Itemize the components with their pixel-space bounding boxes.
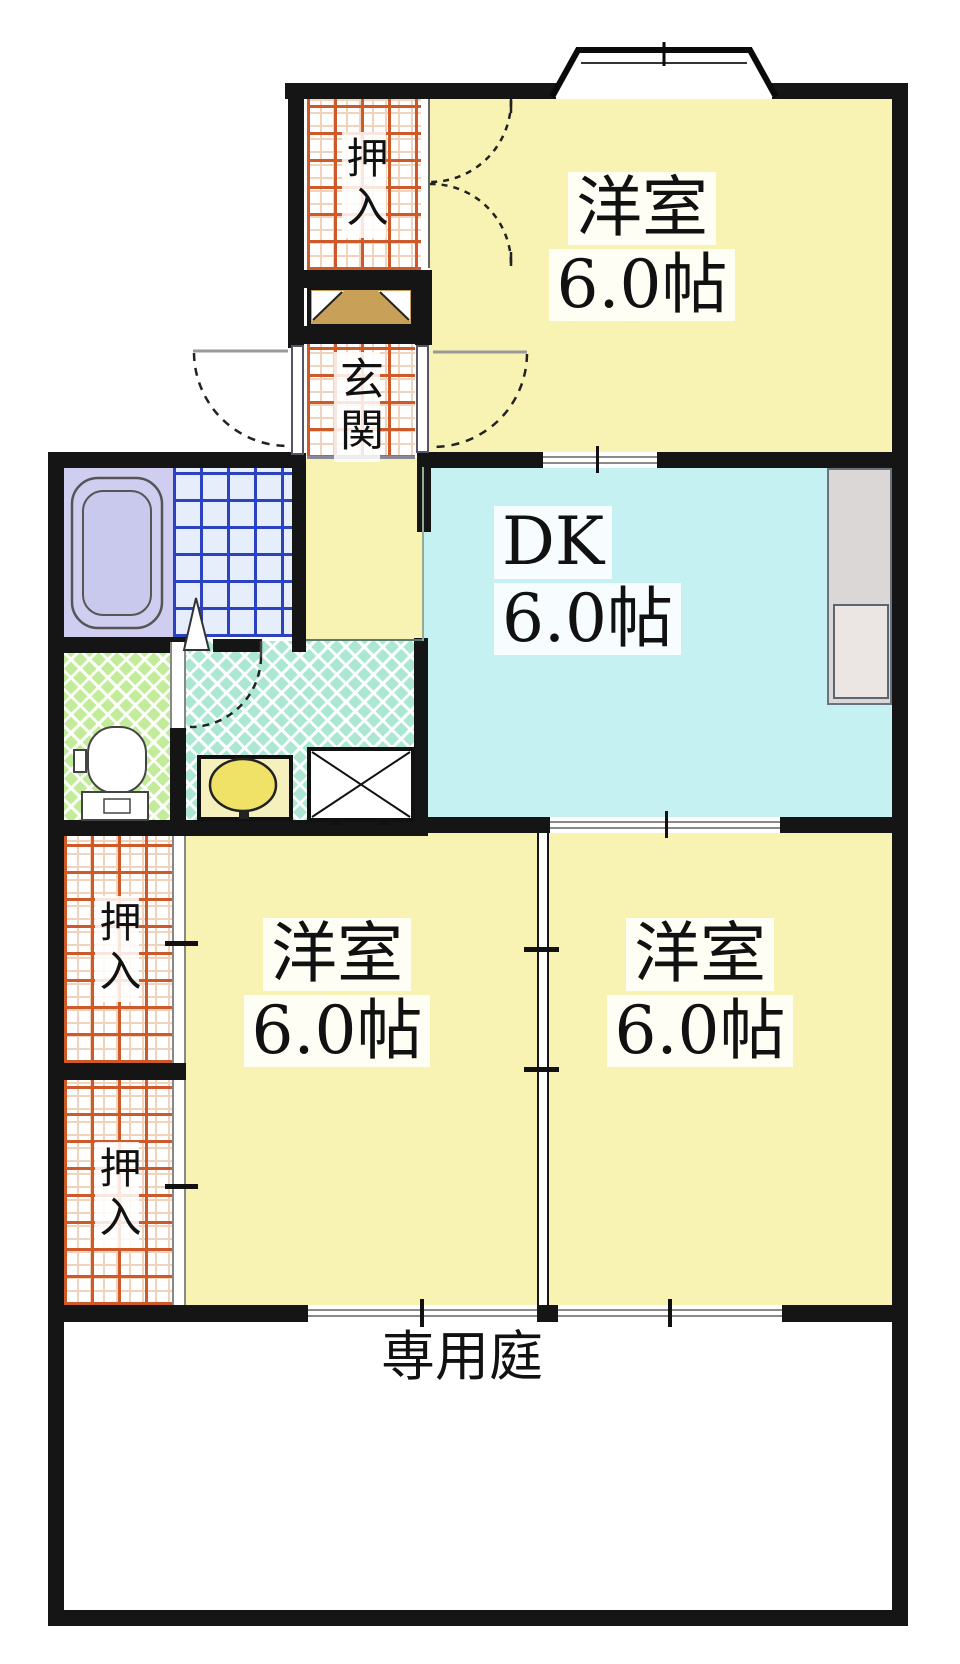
- wall: [657, 452, 908, 468]
- dk-label: DK 6.0帖: [494, 506, 681, 655]
- wall: [414, 638, 428, 822]
- closet-mid-label: 押入: [95, 896, 139, 1002]
- closet-bottom-front: [172, 1080, 186, 1305]
- dk-name: DK: [494, 506, 612, 579]
- window-room-top-dk: [543, 452, 657, 468]
- bathroom-floor-area: [173, 467, 292, 637]
- entrance-label: 玄関: [334, 352, 380, 462]
- washroom-area: [186, 641, 414, 820]
- garden-label: 専用庭: [312, 1330, 612, 1384]
- wall: [48, 1063, 186, 1080]
- closet-top-label: 押入: [342, 132, 386, 238]
- hall-dk-line: [422, 467, 424, 641]
- closet-bottom-label: 押入: [95, 1142, 139, 1248]
- garden-wall-bottom: [48, 1610, 908, 1626]
- room-top-label: 洋室 6.0帖: [452, 172, 832, 321]
- floor-plan: 洋室 6.0帖 DK 6.0帖 洋室 6.0帖 洋室 6.0帖 専用庭 玄関 押…: [0, 0, 960, 1664]
- wall: [428, 817, 550, 833]
- wall: [48, 1305, 308, 1322]
- wall: [48, 452, 293, 468]
- kitchen-sink: [833, 604, 889, 699]
- toilet-room-area: [64, 652, 170, 820]
- room-se-label: 洋室 6.0帖: [530, 918, 870, 1067]
- room-se-name: 洋室: [626, 918, 774, 991]
- western-room-sw-area: [186, 833, 537, 1305]
- wall: [292, 453, 306, 652]
- hall-washroom-line: [306, 639, 423, 641]
- wall: [892, 83, 908, 1322]
- entrance-room-door-leaf: [416, 345, 429, 453]
- wall: [285, 83, 556, 99]
- front-door-leaf: [291, 345, 304, 455]
- window-tick: [420, 1299, 424, 1327]
- wall: [772, 83, 908, 99]
- wall: [304, 326, 432, 344]
- bay-window-wall-gap: [556, 83, 772, 99]
- hallway-area: [306, 458, 423, 641]
- door-tick: [165, 1184, 198, 1189]
- wall: [288, 83, 304, 348]
- closet-top-front: [421, 99, 430, 268]
- room-sw-name: 洋室: [263, 918, 411, 991]
- wall: [428, 452, 543, 468]
- wall: [417, 452, 431, 532]
- room-sw-size: 6.0帖: [244, 995, 431, 1068]
- wall: [304, 270, 432, 288]
- shoe-cabinet: [307, 286, 415, 328]
- front-door-swing: [193, 351, 288, 446]
- wall: [537, 1305, 558, 1322]
- bathroom-area: [64, 467, 173, 637]
- garden-wall-right: [892, 1322, 908, 1626]
- western-room-se-area: [549, 833, 892, 1305]
- partition-tick: [524, 1067, 559, 1072]
- room-sw-label: 洋室 6.0帖: [167, 918, 507, 1067]
- room-top-name: 洋室: [568, 172, 716, 245]
- wall: [213, 639, 262, 652]
- toilet-door: [170, 642, 186, 728]
- wall: [780, 817, 908, 833]
- room-se-size: 6.0帖: [607, 995, 794, 1068]
- window-tick: [596, 446, 599, 473]
- wall: [48, 452, 64, 1626]
- dk-size: 6.0帖: [494, 583, 681, 656]
- window-tick: [668, 1299, 672, 1327]
- wall: [782, 1305, 908, 1322]
- room-top-size: 6.0帖: [549, 249, 736, 322]
- wall: [48, 637, 184, 653]
- window-tick: [665, 811, 668, 838]
- wall: [48, 820, 428, 836]
